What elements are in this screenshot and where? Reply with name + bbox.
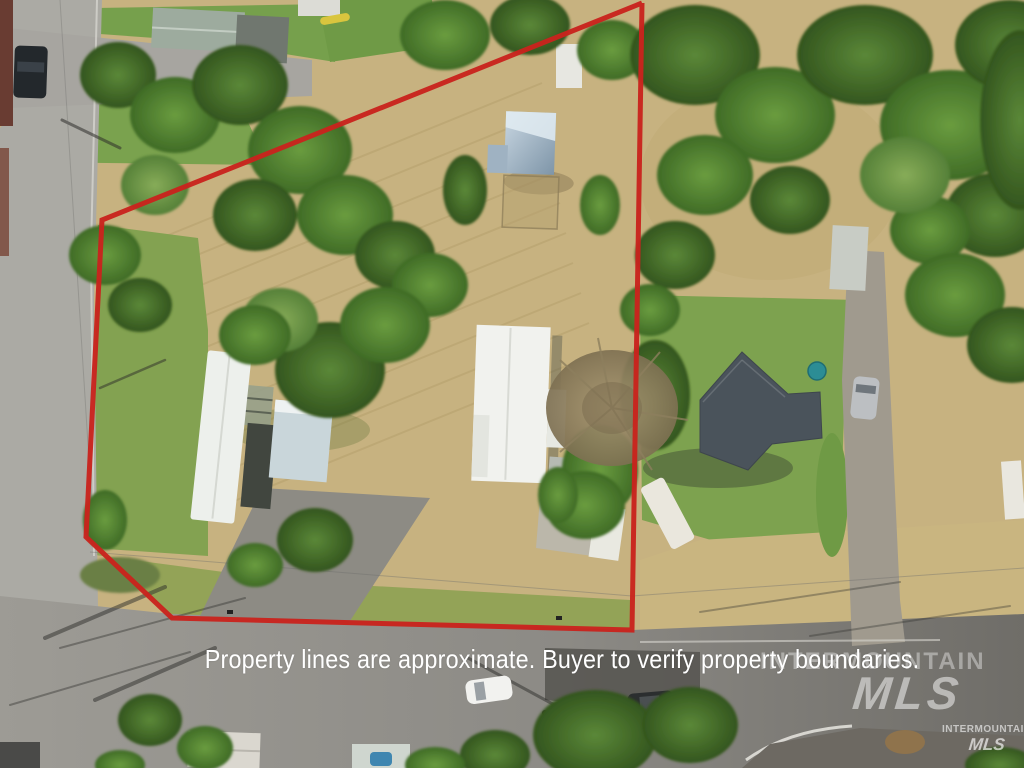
red-building-edge: [0, 0, 13, 126]
dark-roof-bottom-corner: [0, 742, 40, 768]
blue-pool: [370, 752, 392, 766]
red-building-edge-2: [0, 148, 9, 256]
mls-watermark-small-line2: MLS: [941, 736, 1024, 753]
house-top-left: [151, 8, 245, 53]
shed-top-right: [829, 225, 868, 291]
mls-watermark-small: INTERMOUNTAIN MLS: [942, 725, 1024, 753]
dirt-pile: [885, 730, 925, 754]
white-structure-right: [1001, 460, 1024, 519]
aerial-photo: INTERMOUNTAIN MLS Property lines are app…: [0, 0, 1024, 768]
property-disclaimer-text: Property lines are approximate. Buyer to…: [205, 644, 920, 675]
mailbox: [556, 616, 562, 620]
dark-truck-top-left: [13, 45, 48, 98]
mls-watermark-small-line1: INTERMOUNTAIN: [942, 725, 1024, 735]
trampoline: [808, 362, 826, 380]
mailbox: [227, 610, 233, 614]
white-roof-top: [298, 0, 340, 16]
silver-car-right: [850, 376, 880, 420]
